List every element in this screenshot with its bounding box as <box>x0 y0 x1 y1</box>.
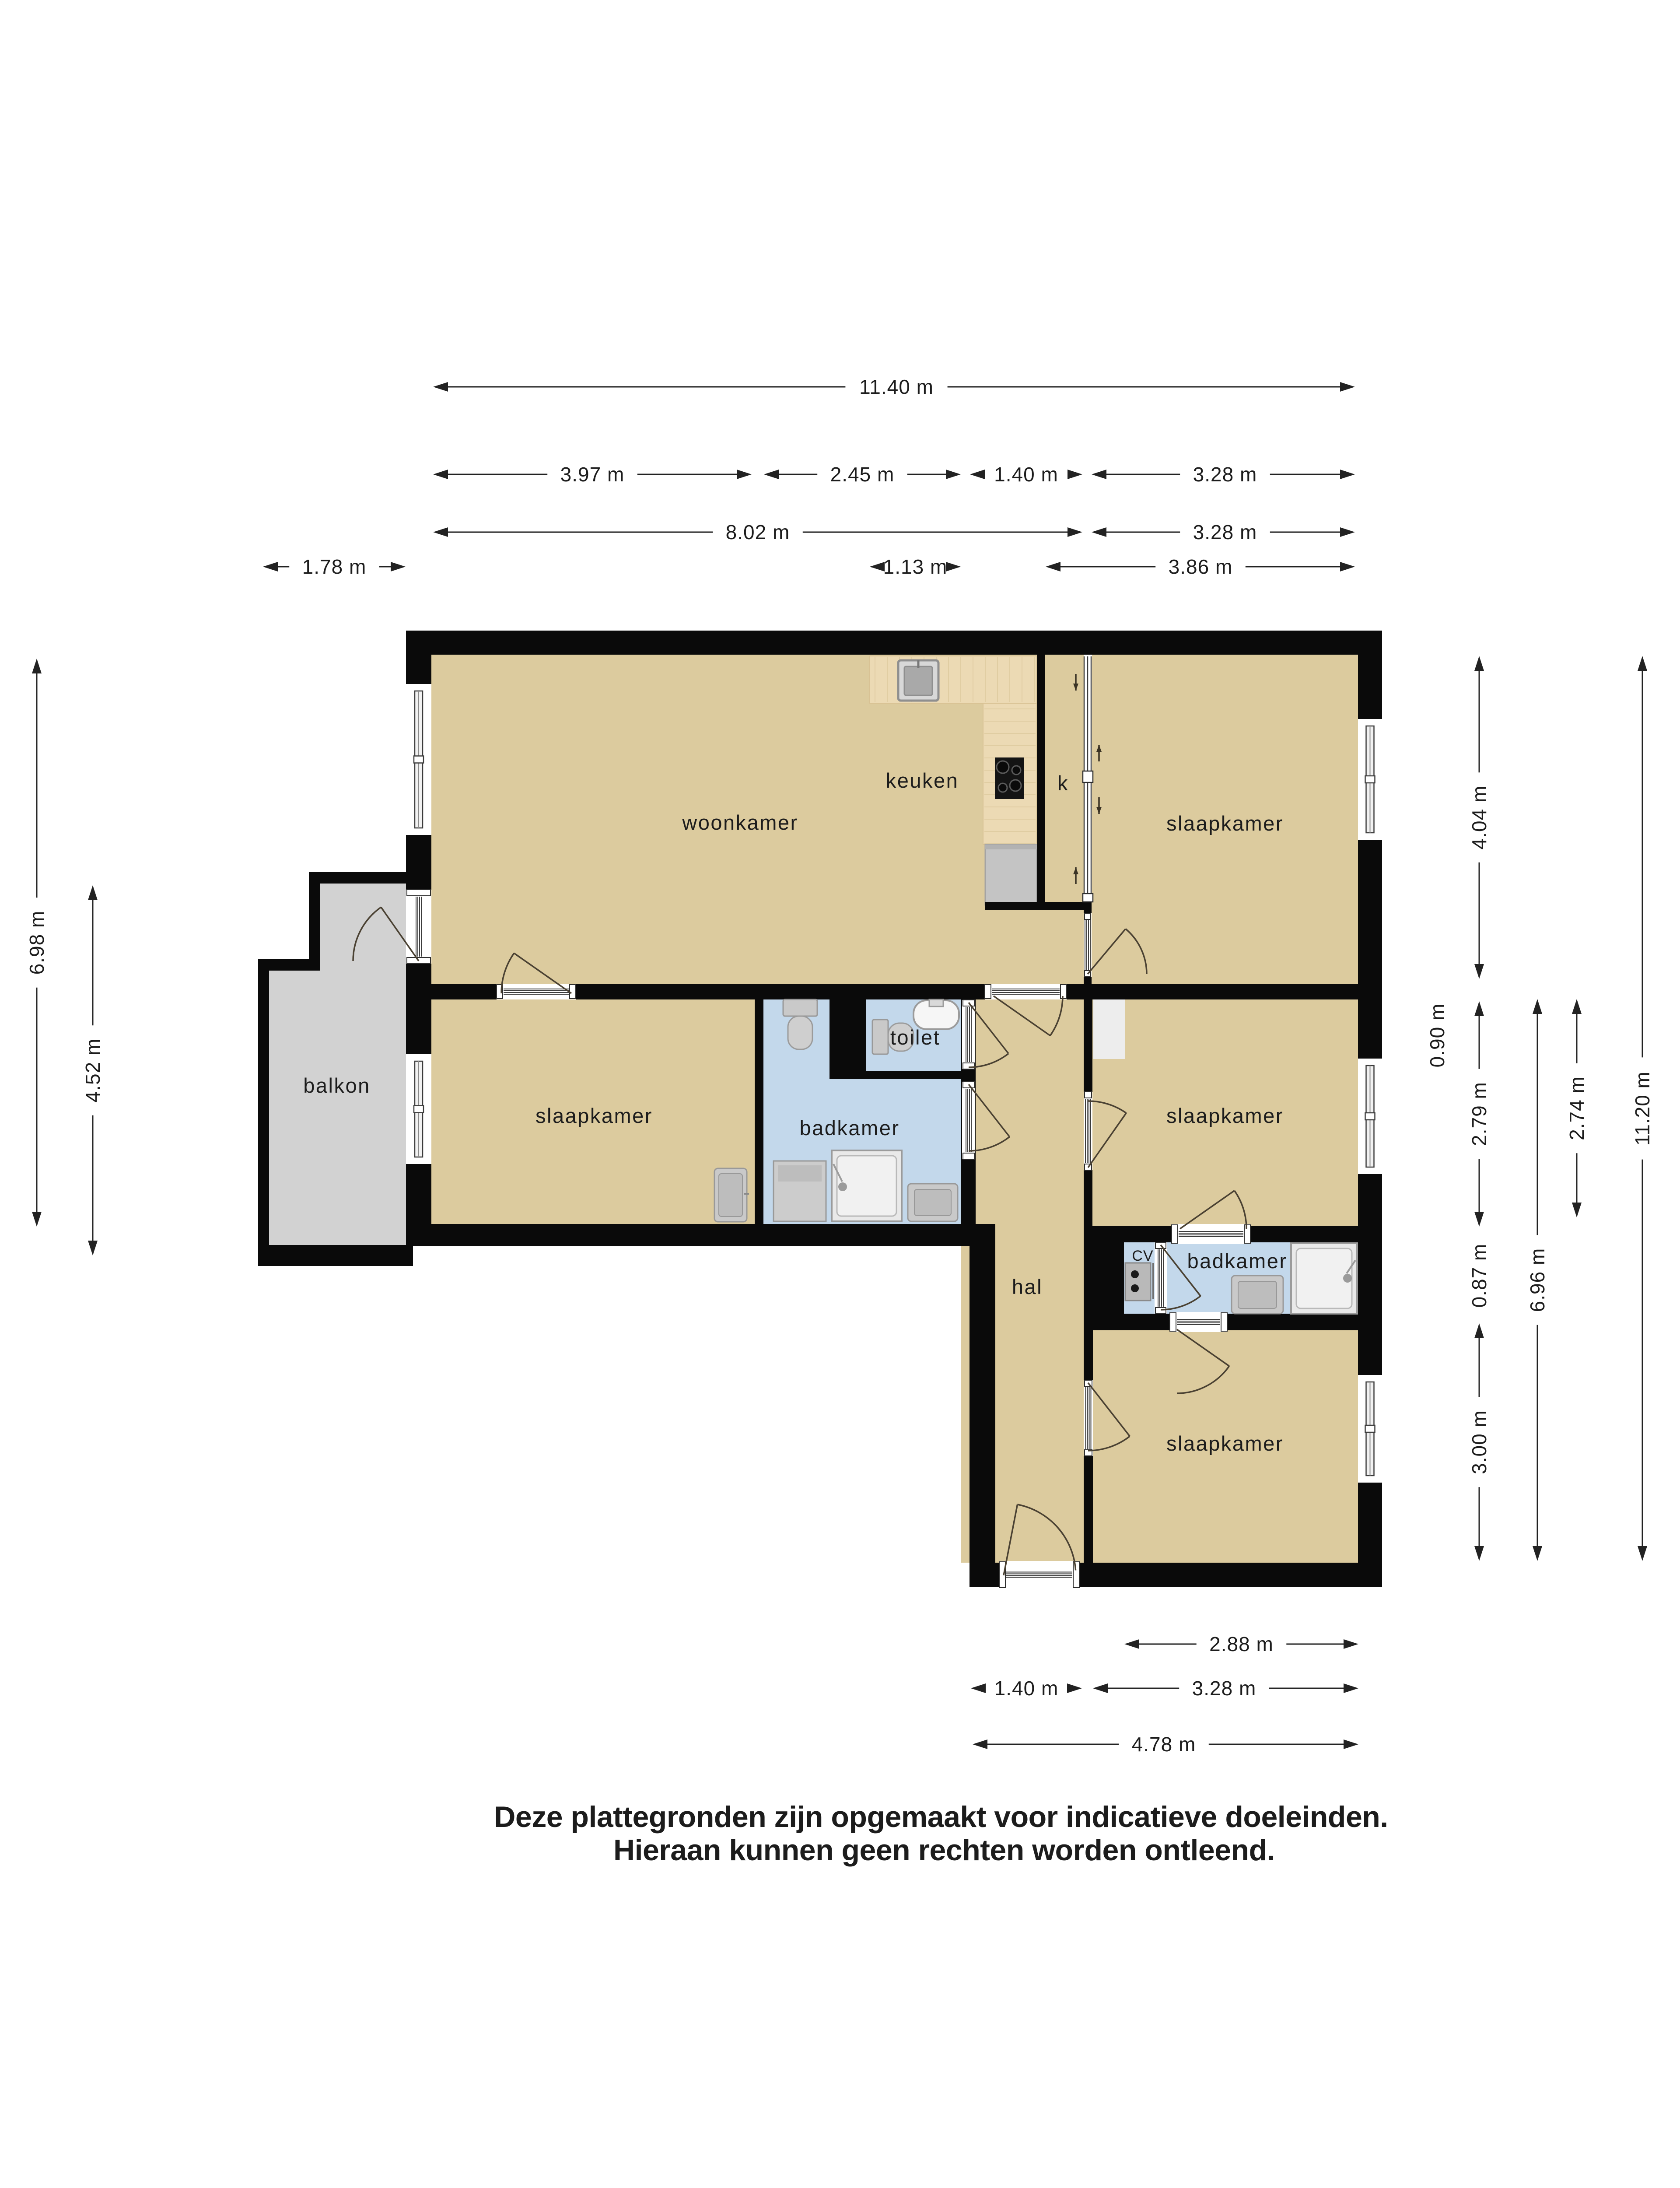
svg-text:2.74 m: 2.74 m <box>1565 1076 1588 1140</box>
svg-text:1.78 m: 1.78 m <box>302 555 367 578</box>
svg-text:4.52 m: 4.52 m <box>81 1038 104 1103</box>
svg-text:slaapkamer: slaapkamer <box>1166 1104 1284 1127</box>
svg-text:1.13 m: 1.13 m <box>883 555 948 578</box>
svg-text:toilet: toilet <box>890 1026 940 1049</box>
svg-text:Deze plattegronden zijn opgema: Deze plattegronden zijn opgemaakt voor i… <box>494 1800 1388 1834</box>
svg-text:4.78 m: 4.78 m <box>1132 1733 1196 1756</box>
svg-text:2.79 m: 2.79 m <box>1468 1082 1491 1146</box>
svg-text:slaapkamer: slaapkamer <box>1166 812 1284 835</box>
svg-text:slaapkamer: slaapkamer <box>535 1104 653 1127</box>
svg-text:hal: hal <box>1012 1275 1043 1298</box>
svg-text:0.90 m: 0.90 m <box>1426 1003 1449 1068</box>
svg-text:2.45 m: 2.45 m <box>830 463 895 486</box>
svg-text:0.87 m: 0.87 m <box>1468 1244 1491 1308</box>
svg-text:3.97 m: 3.97 m <box>560 463 625 486</box>
svg-text:6.96 m: 6.96 m <box>1526 1248 1549 1312</box>
svg-text:slaapkamer: slaapkamer <box>1166 1432 1284 1455</box>
svg-text:woonkamer: woonkamer <box>682 811 798 834</box>
svg-text:3.28 m: 3.28 m <box>1193 521 1257 543</box>
svg-text:4.04 m: 4.04 m <box>1468 785 1491 850</box>
svg-text:1.40 m: 1.40 m <box>994 1677 1059 1700</box>
svg-text:8.02 m: 8.02 m <box>726 521 790 543</box>
svg-text:2.88 m: 2.88 m <box>1209 1633 1274 1655</box>
svg-text:11.40 m: 11.40 m <box>859 375 934 398</box>
svg-text:k: k <box>1057 771 1069 795</box>
svg-text:badkamer: badkamer <box>1187 1249 1288 1273</box>
svg-text:3.00 m: 3.00 m <box>1468 1410 1491 1474</box>
svg-text:CV: CV <box>1132 1248 1153 1264</box>
svg-text:keuken: keuken <box>886 769 959 792</box>
svg-text:Hieraan kunnen geen rechten wo: Hieraan kunnen geen rechten worden ontle… <box>613 1834 1275 1867</box>
svg-text:6.98 m: 6.98 m <box>25 911 48 975</box>
svg-text:balkon: balkon <box>303 1074 371 1097</box>
svg-text:3.28 m: 3.28 m <box>1193 463 1257 486</box>
svg-text:1.40 m: 1.40 m <box>994 463 1058 486</box>
svg-text:11.20 m: 11.20 m <box>1631 1071 1654 1146</box>
svg-text:3.86 m: 3.86 m <box>1169 555 1233 578</box>
svg-text:badkamer: badkamer <box>800 1116 900 1140</box>
svg-text:3.28 m: 3.28 m <box>1192 1677 1256 1700</box>
